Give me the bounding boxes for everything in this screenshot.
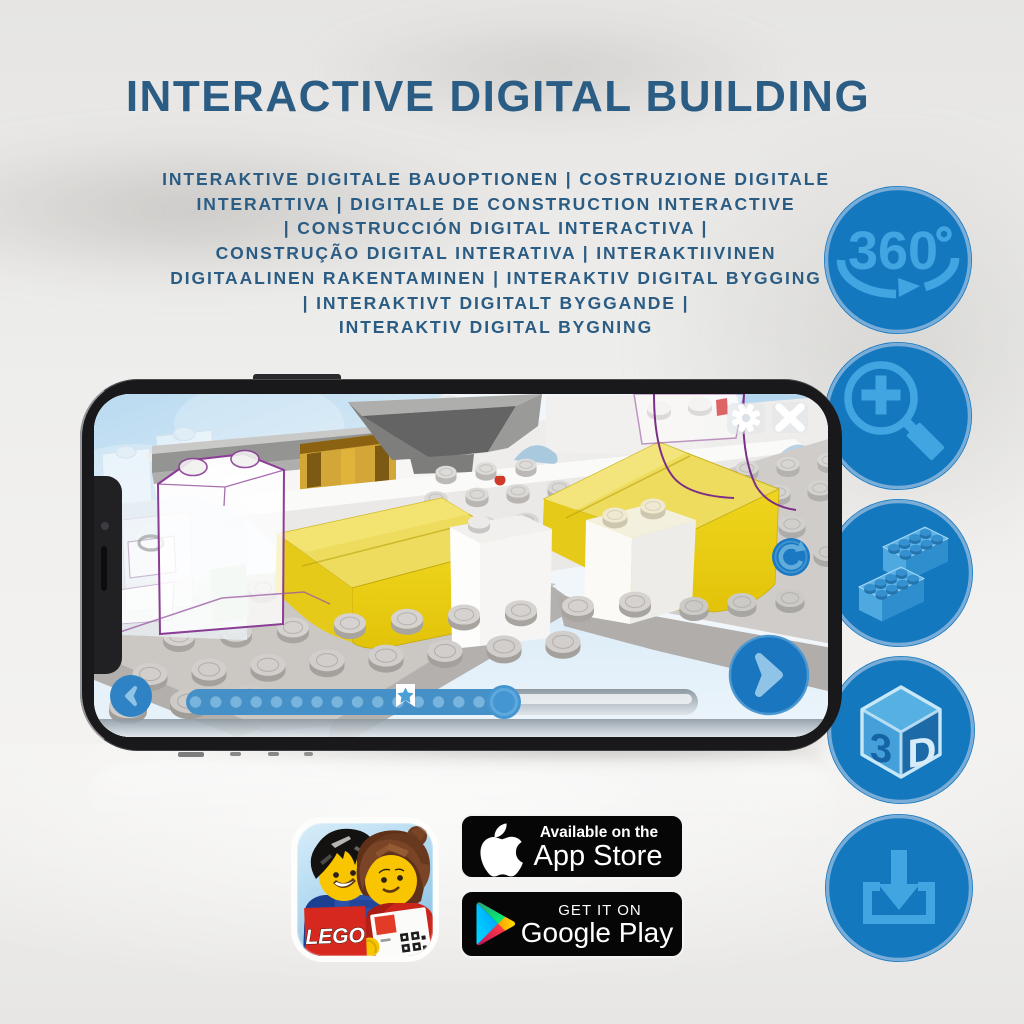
svg-text:360: 360 <box>848 221 938 281</box>
svg-text:LEGO: LEGO <box>305 924 365 949</box>
svg-text:D: D <box>908 728 937 777</box>
svg-text:3: 3 <box>870 724 892 772</box>
